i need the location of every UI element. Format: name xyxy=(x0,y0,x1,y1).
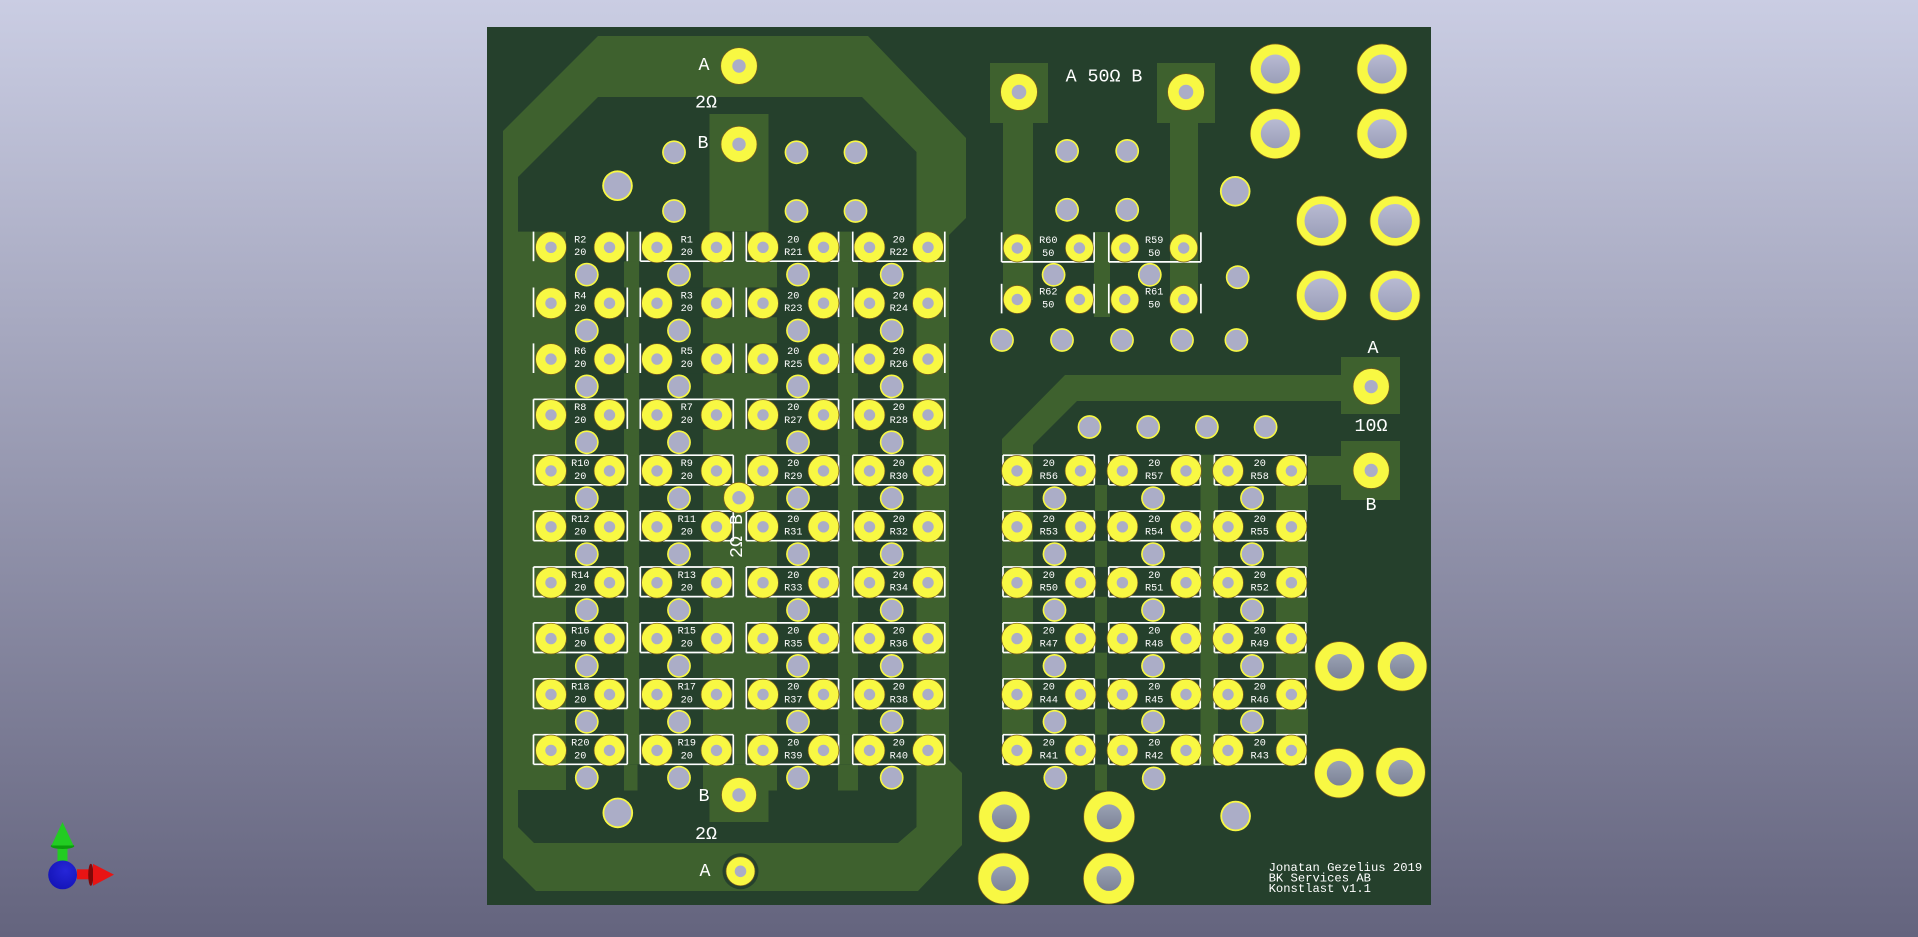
svg-text:20: 20 xyxy=(1043,571,1055,582)
svg-text:20: 20 xyxy=(1043,515,1055,526)
svg-text:R54: R54 xyxy=(1145,528,1163,539)
svg-text:20: 20 xyxy=(1254,627,1266,638)
svg-text:R1: R1 xyxy=(681,235,693,246)
svg-text:R44: R44 xyxy=(1040,695,1058,706)
svg-text:20: 20 xyxy=(787,403,799,414)
svg-text:R17: R17 xyxy=(678,683,696,694)
svg-text:20: 20 xyxy=(893,683,905,694)
svg-text:20: 20 xyxy=(1043,459,1055,470)
svg-text:R23: R23 xyxy=(784,304,802,315)
svg-text:20: 20 xyxy=(681,640,693,651)
svg-text:20: 20 xyxy=(1043,683,1055,694)
svg-text:R55: R55 xyxy=(1251,528,1269,539)
svg-text:R15: R15 xyxy=(678,627,696,638)
svg-text:20: 20 xyxy=(574,304,586,315)
svg-text:20: 20 xyxy=(893,459,905,470)
svg-text:20: 20 xyxy=(893,571,905,582)
svg-text:20: 20 xyxy=(787,683,799,694)
svg-text:R8: R8 xyxy=(574,403,586,414)
svg-text:20: 20 xyxy=(574,640,586,651)
svg-text:20: 20 xyxy=(893,627,905,638)
svg-text:R34: R34 xyxy=(890,584,908,595)
svg-text:R6: R6 xyxy=(574,347,586,358)
svg-text:R33: R33 xyxy=(784,584,802,595)
svg-text:20: 20 xyxy=(1254,459,1266,470)
svg-text:R7: R7 xyxy=(681,403,693,414)
svg-text:A: A xyxy=(699,56,710,76)
svg-text:20: 20 xyxy=(1148,683,1160,694)
svg-text:R18: R18 xyxy=(571,683,589,694)
svg-text:20: 20 xyxy=(1254,515,1266,526)
svg-text:R29: R29 xyxy=(784,472,802,483)
svg-text:50: 50 xyxy=(1148,300,1160,311)
svg-text:R46: R46 xyxy=(1251,695,1269,706)
svg-text:R47: R47 xyxy=(1040,640,1058,651)
svg-text:20: 20 xyxy=(574,695,586,706)
svg-text:R37: R37 xyxy=(784,695,802,706)
svg-text:R35: R35 xyxy=(784,640,802,651)
svg-text:20: 20 xyxy=(681,695,693,706)
svg-text:50: 50 xyxy=(1148,249,1160,260)
svg-text:20: 20 xyxy=(1254,739,1266,750)
svg-text:20: 20 xyxy=(1043,739,1055,750)
svg-text:R11: R11 xyxy=(678,515,696,526)
svg-text:20: 20 xyxy=(787,739,799,750)
svg-text:R28: R28 xyxy=(890,416,908,427)
svg-text:R14: R14 xyxy=(571,571,589,582)
svg-text:R57: R57 xyxy=(1145,472,1163,483)
svg-text:20: 20 xyxy=(787,627,799,638)
svg-text:R52: R52 xyxy=(1251,584,1269,595)
svg-text:R45: R45 xyxy=(1145,695,1163,706)
svg-text:R49: R49 xyxy=(1251,640,1269,651)
svg-text:R61: R61 xyxy=(1145,288,1163,299)
svg-text:R50: R50 xyxy=(1040,584,1058,595)
svg-text:20: 20 xyxy=(574,416,586,427)
svg-text:20: 20 xyxy=(893,347,905,358)
svg-text:R59: R59 xyxy=(1145,236,1163,247)
svg-text:20: 20 xyxy=(893,515,905,526)
svg-text:2Ω B: 2Ω B xyxy=(728,514,748,558)
svg-text:20: 20 xyxy=(1254,571,1266,582)
svg-text:R40: R40 xyxy=(890,751,908,762)
svg-text:2Ω: 2Ω xyxy=(695,94,717,114)
svg-text:20: 20 xyxy=(681,416,693,427)
svg-text:20: 20 xyxy=(1148,571,1160,582)
svg-text:20: 20 xyxy=(893,739,905,750)
svg-text:R30: R30 xyxy=(890,472,908,483)
svg-text:R25: R25 xyxy=(784,360,802,371)
svg-text:20: 20 xyxy=(893,403,905,414)
svg-text:R13: R13 xyxy=(678,571,696,582)
svg-text:R39: R39 xyxy=(784,751,802,762)
svg-text:20: 20 xyxy=(787,291,799,302)
svg-text:20: 20 xyxy=(574,360,586,371)
svg-text:R36: R36 xyxy=(890,640,908,651)
svg-text:20: 20 xyxy=(1148,515,1160,526)
svg-text:20: 20 xyxy=(787,347,799,358)
svg-text:20: 20 xyxy=(574,751,586,762)
svg-text:20: 20 xyxy=(893,291,905,302)
svg-text:A 50Ω B: A 50Ω B xyxy=(1066,68,1143,88)
svg-text:R32: R32 xyxy=(890,528,908,539)
svg-text:20: 20 xyxy=(1148,739,1160,750)
svg-text:A: A xyxy=(1368,339,1379,359)
svg-text:B: B xyxy=(699,787,710,807)
svg-text:20: 20 xyxy=(787,235,799,246)
svg-text:20: 20 xyxy=(574,584,586,595)
svg-text:B: B xyxy=(698,134,709,154)
svg-text:R19: R19 xyxy=(678,739,696,750)
svg-text:50: 50 xyxy=(1042,300,1054,311)
svg-text:20: 20 xyxy=(681,304,693,315)
svg-text:20: 20 xyxy=(681,751,693,762)
svg-text:R27: R27 xyxy=(784,416,802,427)
svg-text:20: 20 xyxy=(1043,627,1055,638)
svg-text:10Ω: 10Ω xyxy=(1355,417,1388,437)
svg-text:20: 20 xyxy=(1148,627,1160,638)
svg-text:20: 20 xyxy=(1148,459,1160,470)
svg-text:R24: R24 xyxy=(890,304,908,315)
svg-text:20: 20 xyxy=(574,472,586,483)
svg-text:R58: R58 xyxy=(1251,472,1269,483)
svg-text:R9: R9 xyxy=(681,459,693,470)
svg-text:R56: R56 xyxy=(1040,472,1058,483)
svg-text:20: 20 xyxy=(681,528,693,539)
svg-text:20: 20 xyxy=(574,528,586,539)
svg-text:R22: R22 xyxy=(890,248,908,259)
svg-text:R2: R2 xyxy=(574,235,586,246)
svg-text:R62: R62 xyxy=(1039,288,1057,299)
svg-text:20: 20 xyxy=(787,459,799,470)
svg-text:R42: R42 xyxy=(1145,751,1163,762)
svg-text:20: 20 xyxy=(787,571,799,582)
svg-text:B: B xyxy=(1366,496,1377,516)
svg-text:R41: R41 xyxy=(1040,751,1058,762)
svg-text:R38: R38 xyxy=(890,695,908,706)
svg-text:R21: R21 xyxy=(784,248,802,259)
svg-text:Konstlast v1.1: Konstlast v1.1 xyxy=(1269,882,1371,896)
svg-text:20: 20 xyxy=(681,472,693,483)
svg-text:R60: R60 xyxy=(1039,236,1057,247)
svg-text:20: 20 xyxy=(681,584,693,595)
svg-text:R26: R26 xyxy=(890,360,908,371)
svg-text:20: 20 xyxy=(893,235,905,246)
svg-text:20: 20 xyxy=(574,248,586,259)
svg-text:2Ω: 2Ω xyxy=(695,825,717,845)
svg-text:R51: R51 xyxy=(1145,584,1163,595)
svg-text:R31: R31 xyxy=(784,528,802,539)
svg-text:R20: R20 xyxy=(571,739,589,750)
svg-text:20: 20 xyxy=(681,360,693,371)
svg-text:20: 20 xyxy=(681,248,693,259)
svg-text:R48: R48 xyxy=(1145,640,1163,651)
svg-text:R10: R10 xyxy=(571,459,589,470)
svg-text:20: 20 xyxy=(1254,683,1266,694)
svg-text:R53: R53 xyxy=(1040,528,1058,539)
svg-text:R12: R12 xyxy=(571,515,589,526)
svg-text:20: 20 xyxy=(787,515,799,526)
svg-text:50: 50 xyxy=(1042,249,1054,260)
svg-text:R4: R4 xyxy=(574,291,586,302)
svg-text:R3: R3 xyxy=(681,291,693,302)
svg-text:R43: R43 xyxy=(1251,751,1269,762)
svg-text:A: A xyxy=(700,862,711,882)
svg-text:R16: R16 xyxy=(571,627,589,638)
svg-text:R5: R5 xyxy=(681,347,693,358)
